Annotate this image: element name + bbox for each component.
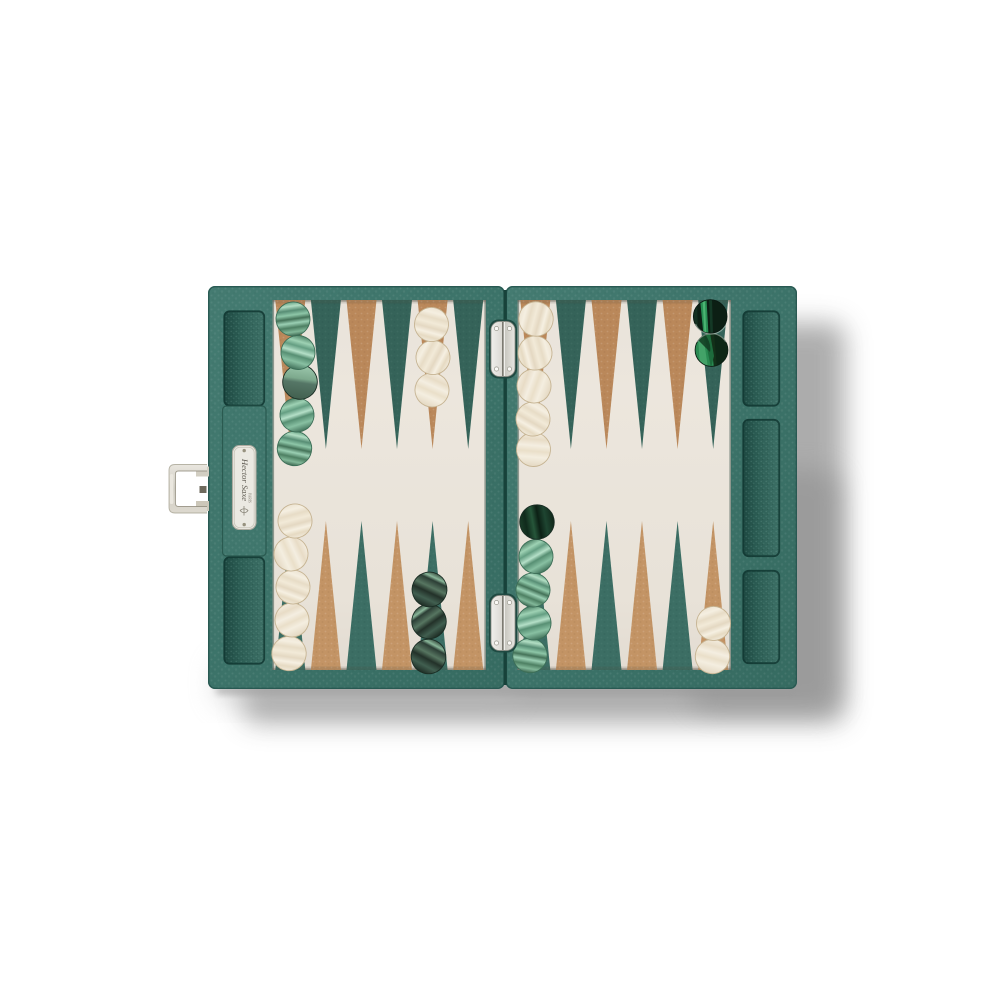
svg-text:PARIS: PARIS <box>248 493 252 503</box>
